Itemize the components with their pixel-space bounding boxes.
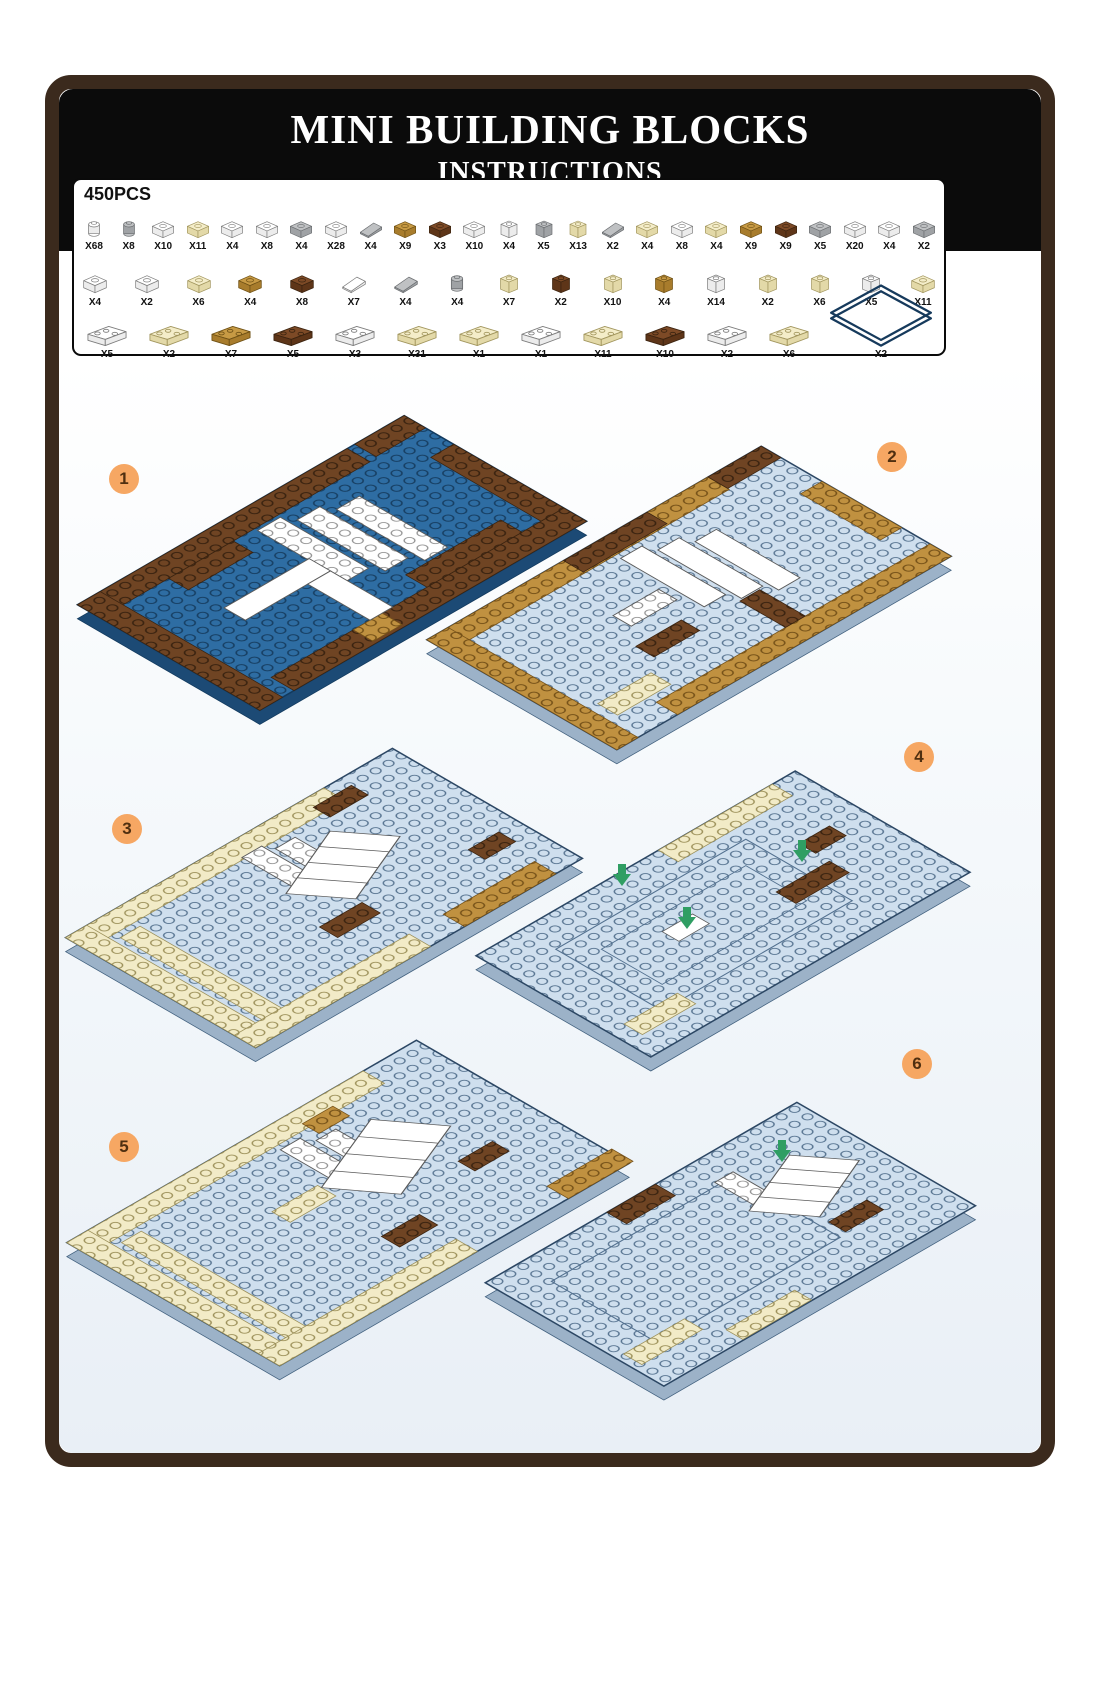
part-qty-label: X2 bbox=[607, 242, 619, 252]
part-item: X7 bbox=[202, 323, 260, 360]
part-item: X8 bbox=[113, 217, 145, 252]
part-item: X10 bbox=[636, 323, 694, 360]
part-qty-label: X4 bbox=[244, 298, 256, 308]
part-qty-label: X2 bbox=[555, 298, 567, 308]
step-5-badge: 5 bbox=[109, 1132, 139, 1162]
brick-icon bbox=[233, 270, 267, 297]
step-2-badge: 2 bbox=[877, 442, 907, 472]
brick-icon bbox=[908, 217, 940, 241]
parts-row-2: X4 bbox=[78, 254, 940, 308]
brick-icon bbox=[596, 270, 630, 297]
part-item: X2 bbox=[822, 281, 940, 360]
part-qty-label: X8 bbox=[676, 242, 688, 252]
part-qty-label: X5 bbox=[537, 242, 549, 252]
part-item: X2 bbox=[130, 270, 164, 308]
part-qty-label: X4 bbox=[295, 242, 307, 252]
part-qty-label: X9 bbox=[745, 242, 757, 252]
brick-icon bbox=[666, 217, 698, 241]
part-qty-label: X8 bbox=[261, 242, 273, 252]
brick-icon bbox=[130, 270, 164, 297]
part-qty-label: X1 bbox=[473, 350, 485, 360]
part-item: X2 bbox=[140, 323, 198, 360]
part-item: X2 bbox=[544, 270, 578, 308]
brick-icon bbox=[562, 217, 594, 241]
brick-icon bbox=[424, 217, 456, 241]
part-qty-label: X9 bbox=[779, 242, 791, 252]
parts-row-3: X5 bbox=[78, 308, 940, 360]
part-item: X10 bbox=[147, 217, 179, 252]
part-qty-label: X2 bbox=[762, 298, 774, 308]
part-item: X11 bbox=[182, 217, 214, 252]
brick-icon bbox=[78, 217, 110, 241]
brick-icon bbox=[140, 323, 198, 349]
brick-icon bbox=[822, 281, 940, 349]
brick-icon bbox=[78, 270, 112, 297]
brick-icon bbox=[751, 270, 785, 297]
part-qty-label: X4 bbox=[641, 242, 653, 252]
parts-list-box: 450PCS bbox=[72, 178, 946, 356]
brick-icon bbox=[78, 323, 136, 349]
brick-icon bbox=[528, 217, 560, 241]
part-item: X9 bbox=[735, 217, 767, 252]
part-qty-label: X4 bbox=[451, 298, 463, 308]
brick-icon bbox=[493, 217, 525, 241]
part-item: X8 bbox=[285, 270, 319, 308]
part-qty-label: X4 bbox=[883, 242, 895, 252]
page-title: MINI BUILDING BLOCKS bbox=[59, 105, 1041, 153]
part-item: X20 bbox=[839, 217, 871, 252]
part-item: X2 bbox=[908, 217, 940, 252]
part-qty-label: X10 bbox=[154, 242, 172, 252]
part-qty-label: X5 bbox=[287, 350, 299, 360]
part-item: X13 bbox=[562, 217, 594, 252]
part-qty-label: X7 bbox=[348, 298, 360, 308]
brick-icon bbox=[440, 270, 474, 297]
part-qty-label: X11 bbox=[594, 350, 611, 360]
brick-icon bbox=[574, 323, 632, 349]
brick-icon bbox=[337, 270, 371, 297]
part-item: X4 bbox=[493, 217, 525, 252]
part-item: X6 bbox=[760, 323, 818, 360]
part-item: X4 bbox=[647, 270, 681, 308]
part-item: X4 bbox=[873, 217, 905, 252]
instruction-sheet-page: MINI BUILDING BLOCKS INSTRUCTIONS PARTS … bbox=[0, 0, 1100, 1700]
part-item: X4 bbox=[389, 270, 423, 308]
brick-icon bbox=[389, 217, 421, 241]
brick-icon bbox=[700, 217, 732, 241]
brick-icon bbox=[647, 270, 681, 297]
part-qty-label: X4 bbox=[658, 298, 670, 308]
step-6-assembly-illustration bbox=[478, 1048, 983, 1458]
brick-icon bbox=[631, 217, 663, 241]
part-item: X68 bbox=[78, 217, 110, 252]
part-item: X6 bbox=[182, 270, 216, 308]
part-qty-label: X5 bbox=[814, 242, 826, 252]
part-qty-label: X3 bbox=[349, 350, 361, 360]
brick-icon bbox=[450, 323, 508, 349]
part-qty-label: X9 bbox=[399, 242, 411, 252]
part-qty-label: X4 bbox=[710, 242, 722, 252]
part-qty-label: X10 bbox=[604, 298, 622, 308]
part-qty-label: X7 bbox=[225, 350, 237, 360]
part-item: X7 bbox=[337, 270, 371, 308]
step-6-badge: 6 bbox=[902, 1049, 932, 1079]
part-item: X8 bbox=[666, 217, 698, 252]
part-qty-label: X6 bbox=[192, 298, 204, 308]
part-qty-label: X8 bbox=[296, 298, 308, 308]
part-item: X4 bbox=[216, 217, 248, 252]
part-item: X28 bbox=[320, 217, 352, 252]
brick-icon bbox=[182, 217, 214, 241]
part-qty-label: X28 bbox=[327, 242, 345, 252]
part-qty-label: X4 bbox=[226, 242, 238, 252]
brick-icon bbox=[458, 217, 490, 241]
part-qty-label: X14 bbox=[707, 298, 725, 308]
part-item: X5 bbox=[264, 323, 322, 360]
brick-icon bbox=[182, 270, 216, 297]
part-item: X3 bbox=[326, 323, 384, 360]
part-item: X31 bbox=[388, 323, 446, 360]
part-qty-label: X2 bbox=[721, 350, 733, 360]
brick-icon bbox=[355, 217, 387, 241]
part-qty-label: X7 bbox=[503, 298, 515, 308]
brick-icon bbox=[544, 270, 578, 297]
part-item: X2 bbox=[698, 323, 756, 360]
brick-icon bbox=[113, 217, 145, 241]
brick-icon bbox=[251, 217, 283, 241]
part-qty-label: X3 bbox=[434, 242, 446, 252]
part-qty-label: X2 bbox=[918, 242, 930, 252]
brick-icon bbox=[320, 217, 352, 241]
part-item: X4 bbox=[355, 217, 387, 252]
part-qty-label: X6 bbox=[783, 350, 795, 360]
part-qty-label: X4 bbox=[503, 242, 515, 252]
part-item: X5 bbox=[804, 217, 836, 252]
brick-icon bbox=[147, 217, 179, 241]
part-qty-label: X11 bbox=[189, 242, 206, 252]
part-qty-label: X10 bbox=[465, 242, 483, 252]
part-item: X4 bbox=[233, 270, 267, 308]
brick-icon bbox=[326, 323, 384, 349]
brick-icon bbox=[285, 217, 317, 241]
part-item: X5 bbox=[78, 323, 136, 360]
brick-icon bbox=[699, 270, 733, 297]
part-qty-label: X4 bbox=[399, 298, 411, 308]
part-item: X11 bbox=[574, 323, 632, 360]
part-item: X8 bbox=[251, 217, 283, 252]
brick-icon bbox=[264, 323, 322, 349]
part-item: X1 bbox=[512, 323, 570, 360]
brick-icon bbox=[388, 323, 446, 349]
brick-icon bbox=[389, 270, 423, 297]
brick-icon bbox=[760, 323, 818, 349]
part-item: X9 bbox=[389, 217, 421, 252]
part-qty-label: X2 bbox=[163, 350, 175, 360]
part-qty-label: X4 bbox=[89, 298, 101, 308]
part-qty-label: X2 bbox=[141, 298, 153, 308]
part-qty-label: X8 bbox=[122, 242, 134, 252]
part-qty-label: X31 bbox=[408, 350, 426, 360]
part-item: X3 bbox=[424, 217, 456, 252]
part-item: X2 bbox=[751, 270, 785, 308]
brick-icon bbox=[285, 270, 319, 297]
part-item: X4 bbox=[78, 270, 112, 308]
part-item: X5 bbox=[528, 217, 560, 252]
part-item: X4 bbox=[440, 270, 474, 308]
brick-icon bbox=[216, 217, 248, 241]
part-item: X4 bbox=[700, 217, 732, 252]
brick-icon bbox=[804, 217, 836, 241]
brick-icon bbox=[492, 270, 526, 297]
part-item: X10 bbox=[596, 270, 630, 308]
brick-icon bbox=[770, 217, 802, 241]
part-qty-label: X20 bbox=[846, 242, 864, 252]
part-item: X1 bbox=[450, 323, 508, 360]
part-item: X2 bbox=[597, 217, 629, 252]
part-qty-label: X1 bbox=[535, 350, 547, 360]
part-qty-label: X5 bbox=[101, 350, 113, 360]
part-qty-label: X13 bbox=[569, 242, 587, 252]
part-item: X9 bbox=[770, 217, 802, 252]
part-qty-label: X4 bbox=[365, 242, 377, 252]
brick-icon bbox=[636, 323, 694, 349]
part-item: X4 bbox=[631, 217, 663, 252]
part-item: X4 bbox=[285, 217, 317, 252]
brick-icon bbox=[839, 217, 871, 241]
part-item: X10 bbox=[458, 217, 490, 252]
step-3-badge: 3 bbox=[112, 814, 142, 844]
step-1-badge: 1 bbox=[109, 464, 139, 494]
brick-icon bbox=[597, 217, 629, 241]
brick-icon bbox=[512, 323, 570, 349]
part-qty-label: X10 bbox=[656, 350, 674, 360]
brick-icon bbox=[202, 323, 260, 349]
parts-row-1: X68 bbox=[78, 200, 940, 252]
part-qty-label: X68 bbox=[85, 242, 103, 252]
step-4-badge: 4 bbox=[904, 742, 934, 772]
brick-icon bbox=[873, 217, 905, 241]
part-item: X14 bbox=[699, 270, 733, 308]
part-qty-label: X2 bbox=[875, 350, 887, 360]
brick-icon bbox=[698, 323, 756, 349]
brick-icon bbox=[735, 217, 767, 241]
part-item: X7 bbox=[492, 270, 526, 308]
